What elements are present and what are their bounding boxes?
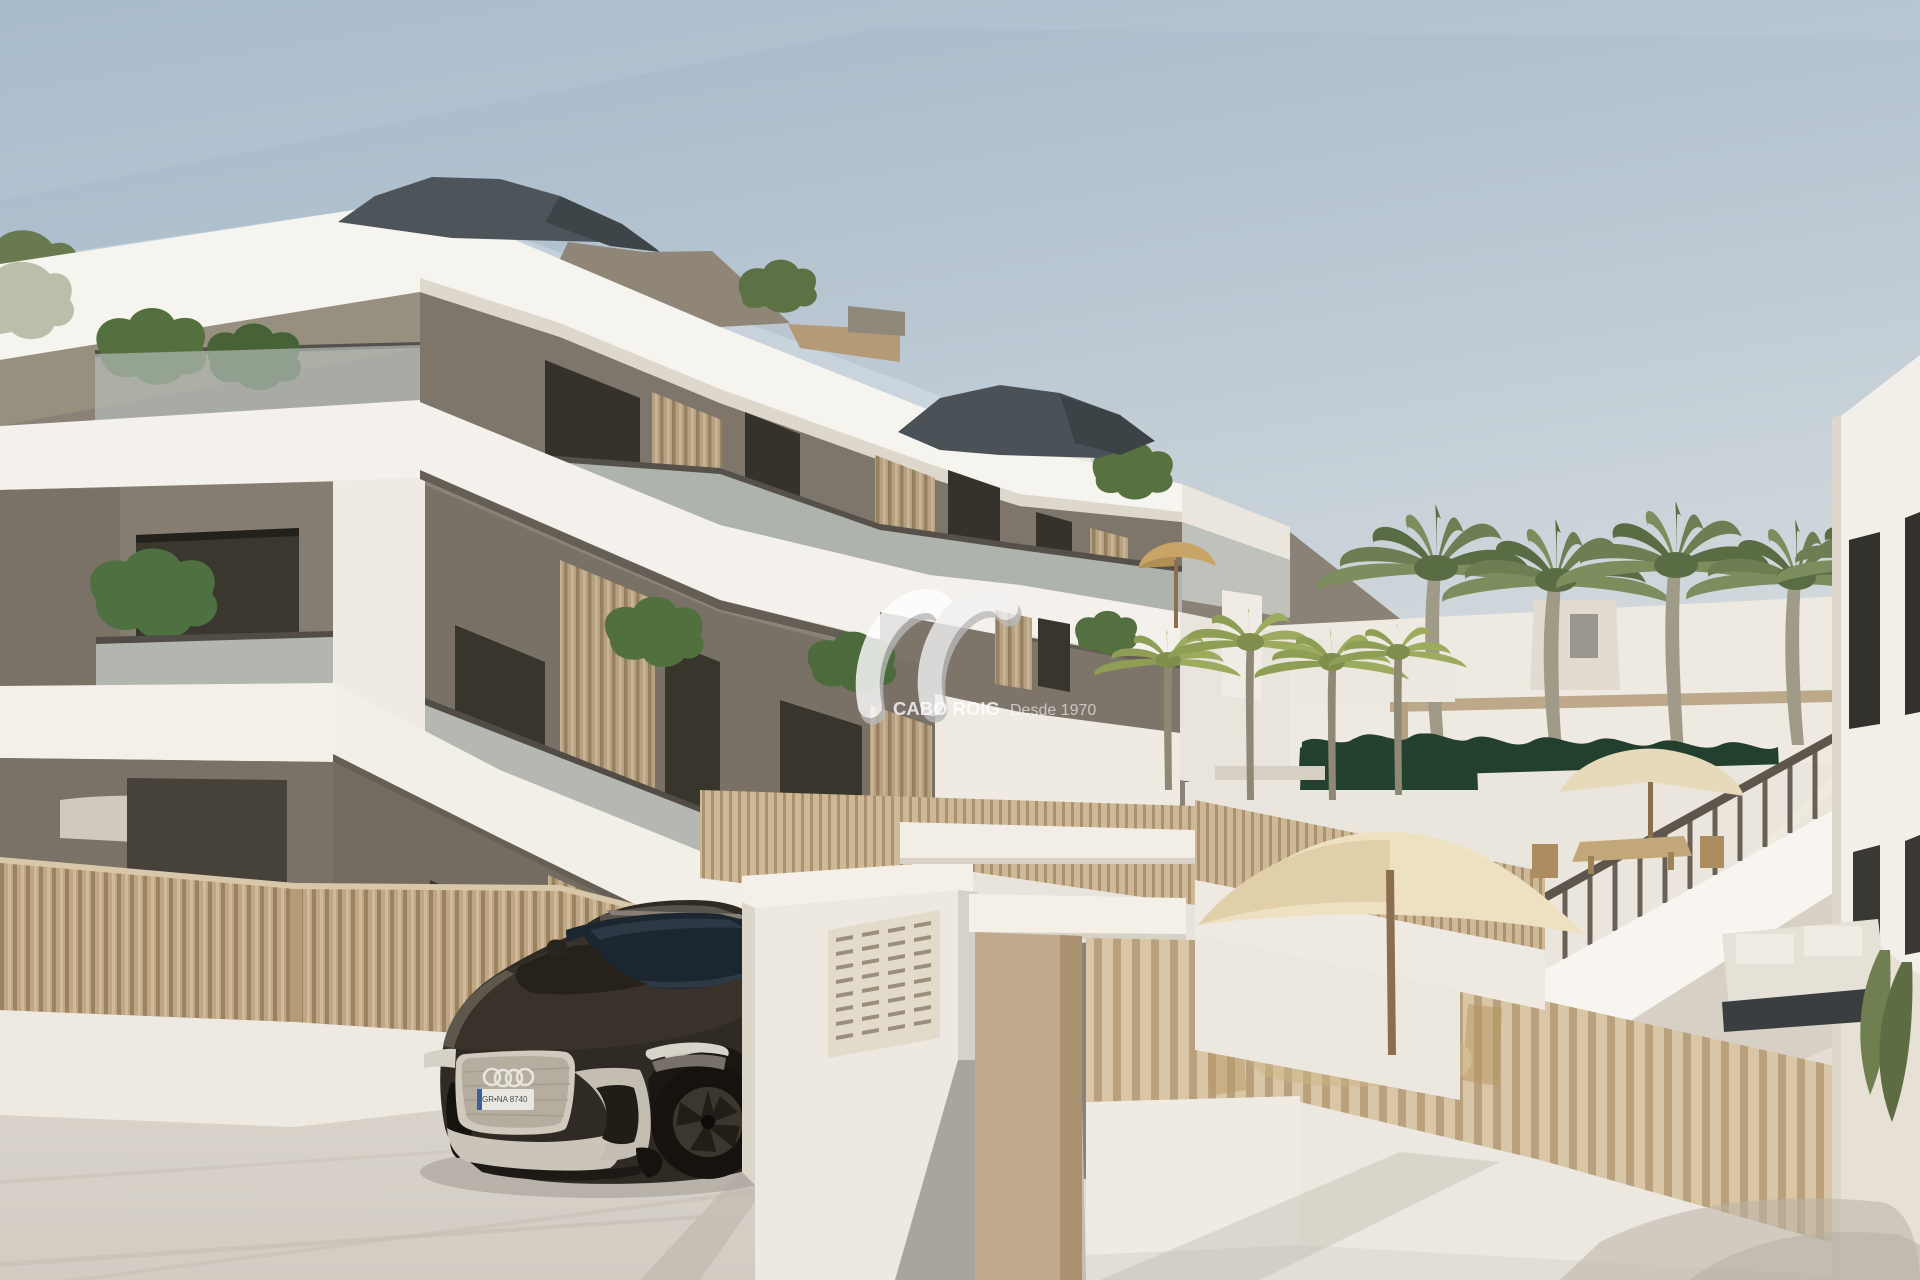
svg-text:CABO ROIG: CABO ROIG xyxy=(893,698,1000,719)
svg-text:GR•NA 8740: GR•NA 8740 xyxy=(482,1095,528,1104)
svg-text:Desde 1970: Desde 1970 xyxy=(1010,702,1096,719)
